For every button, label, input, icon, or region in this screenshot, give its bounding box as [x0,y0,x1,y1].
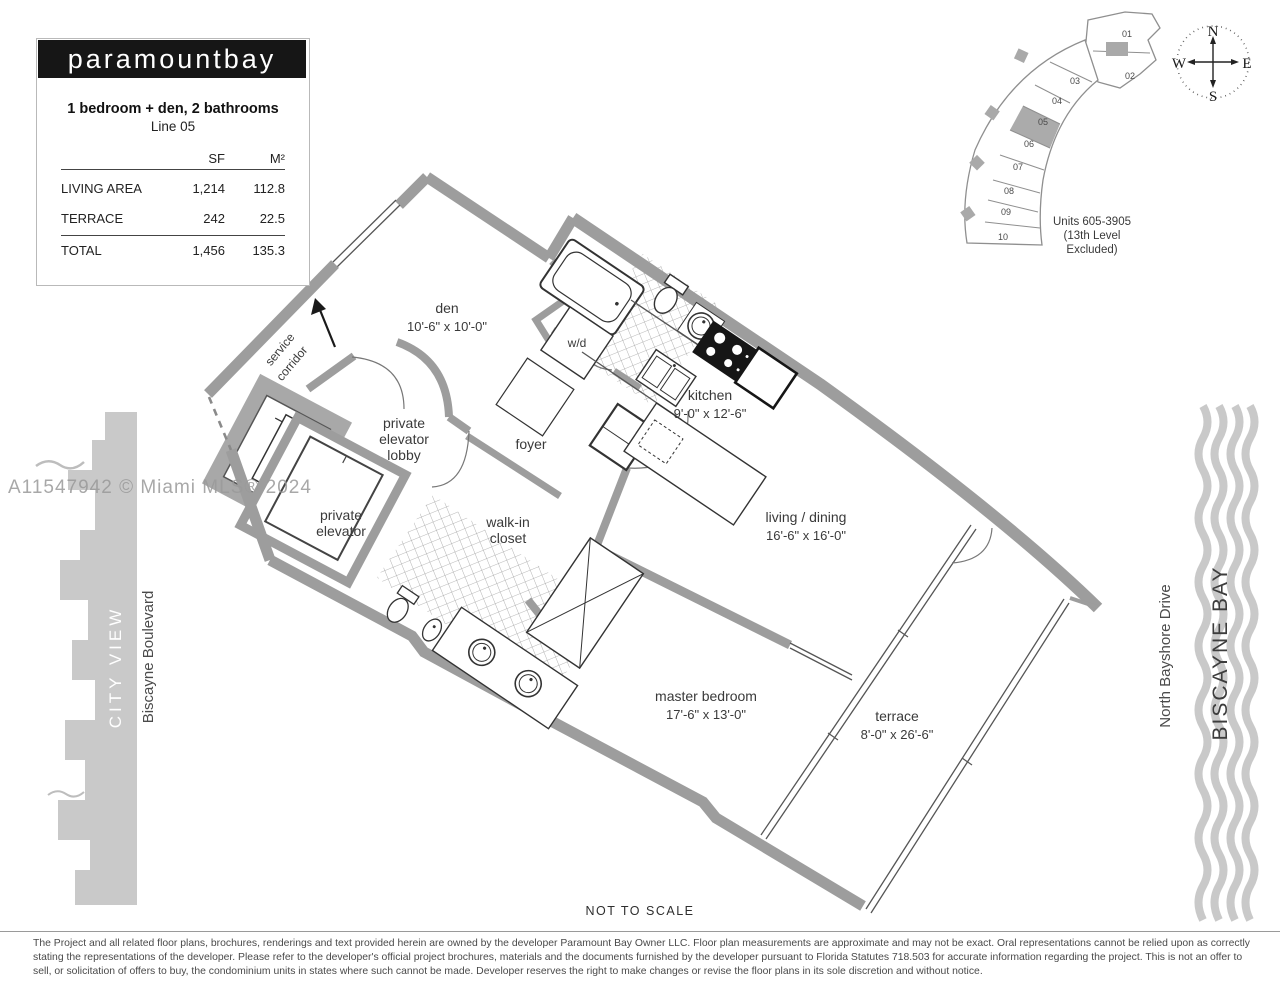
private-elevator-label-2: elevator [316,523,366,539]
compass-s: S [1209,89,1217,105]
compass-n: N [1208,24,1219,40]
compass-w: W [1172,56,1187,72]
den-dims: 10'-6" x 10'-0" [407,319,487,334]
keyplan-unit-08: 08 [1004,186,1014,196]
lobby-label-3: lobby [387,447,420,463]
terrace-label: terrace [875,708,919,724]
keyplan-unit-02: 02 [1125,71,1135,81]
master-bedroom-label: master bedroom [655,688,757,704]
keyplan-core [1106,42,1128,56]
walkin-closet-label-1: walk-in [485,514,530,530]
line-number: Line 05 [37,119,309,134]
living-dining-dims: 16'-6" x 16'-0" [766,528,846,543]
not-to-scale-label: NOT TO SCALE [0,904,1280,918]
kitchen-island [624,403,766,525]
lobby-label-1: private [383,415,425,431]
north-bayshore-drive-label: North Bayshore Drive [1157,584,1174,727]
keyplan-unit-09: 09 [1001,207,1011,217]
col-sf: SF [165,151,225,166]
walkin-closet-label-2: closet [490,530,527,546]
compass-icon: N S E W [1172,24,1252,105]
city-view-label: CITY VIEW [106,606,125,729]
keyplan-unit-01: 01 [1122,29,1132,39]
biscayne-boulevard-label: Biscayne Boulevard [140,591,157,724]
unit-floorplan: den 10'-6" x 10'-0" kitchen 9'-0" x 12'-… [202,177,1098,913]
floorplan-sheet: CITY VIEW Biscayne Boulevard North Baysh… [0,0,1280,989]
bird-icon [36,461,84,468]
area-table-header: SF M² [61,151,285,166]
biscayne-bay-label: BISCAYNE BAY [1209,566,1232,741]
paramountbay-logo: paramountbay [38,40,306,78]
living-dining-label: living / dining [766,509,847,525]
spec-panel: paramountbay 1 bedroom + den, 2 bathroom… [36,38,310,286]
table-row-living-area: LIVING AREA 1,214 112.8 [61,181,285,196]
keyplan-unit-03: 03 [1070,76,1080,86]
master-bedroom-dims: 17'-6" x 13'-0" [666,707,746,722]
keyplan-caption-2: (13th Level [1064,230,1121,242]
service-corridor-arrow [311,298,335,347]
keyplan: 01 02 03 04 05 06 07 08 09 10 Units 605-… [960,12,1160,256]
private-elevator-label-1: private [320,507,362,523]
keyplan-unit-10: 10 [998,232,1008,242]
keyplan-unit-06: 06 [1024,139,1034,149]
wd-label: w/d [567,336,587,350]
den-label: den [435,300,458,316]
kitchen-dims: 9'-0" x 12'-6" [674,406,747,421]
bird-icon [48,791,84,796]
keyplan-unit-05: 05 [1038,117,1048,127]
table-row-total: TOTAL 1,456 135.3 [61,243,285,258]
terrace-dims: 8'-0" x 26'-6" [861,727,934,742]
den-window [333,200,396,262]
terrace-glass-walls [761,525,1097,913]
keyplan-unit-04: 04 [1052,96,1062,106]
keyplan-caption-1: Units 605-3905 [1053,216,1131,228]
foyer-closet [496,358,574,436]
keyplan-unit-07: 07 [1013,162,1023,172]
table-row-terrace: TERRACE 242 22.5 [61,211,285,226]
lobby-label-2: elevator [379,431,429,447]
foyer-label: foyer [515,436,546,452]
keyplan-caption-3: Excluded) [1066,244,1117,256]
table-rule [61,169,285,170]
mls-watermark: A11547942 © Miami MLS® 2024 [8,477,312,499]
col-m2: M² [225,151,285,166]
unit-type-title: 1 bedroom + den, 2 bathrooms [37,101,309,117]
table-rule [61,235,285,236]
compass-e: E [1242,56,1251,72]
kitchen-label: kitchen [688,387,732,403]
legal-disclaimer: The Project and all related floor plans,… [33,937,1251,978]
den-top-wall [427,177,549,258]
footer-divider [0,931,1280,932]
